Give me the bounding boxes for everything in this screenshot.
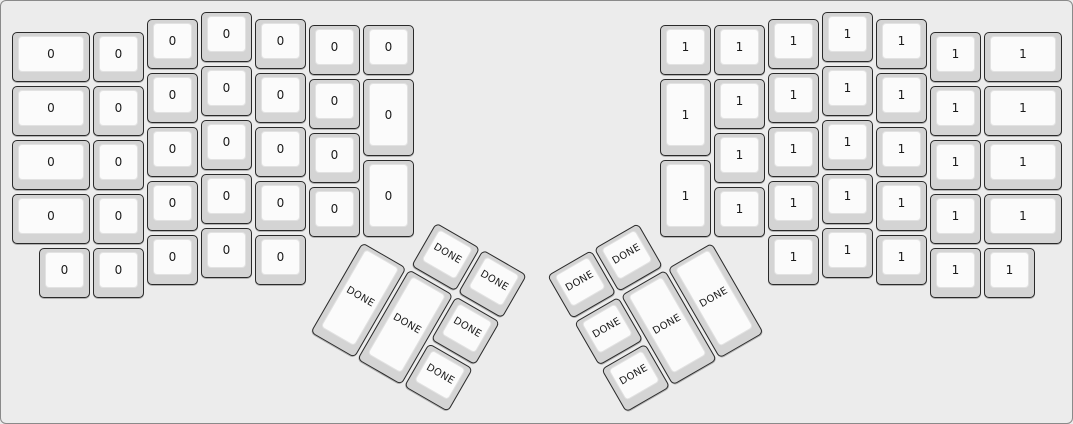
- key-left-main-17[interactable]: 0: [255, 73, 306, 123]
- key-right-main-29[interactable]: 1: [876, 235, 927, 285]
- keycap-top: 1: [720, 83, 759, 119]
- key-label: 1: [952, 156, 960, 168]
- key-right-main-5[interactable]: 1: [714, 133, 765, 183]
- key-label: 0: [47, 210, 55, 222]
- keycap-top: 0: [261, 185, 300, 221]
- keycap-top: 0: [369, 29, 408, 65]
- key-right-main-16[interactable]: 1: [876, 73, 927, 123]
- key-label: 0: [47, 156, 55, 168]
- key-label: 1: [736, 95, 744, 107]
- key-label: 0: [277, 197, 285, 209]
- keycap-top: 1: [882, 77, 921, 113]
- keycap-top: 1: [936, 36, 975, 72]
- keycap-top: 1: [990, 36, 1056, 72]
- key-label: 0: [223, 28, 231, 40]
- key-label: 1: [898, 251, 906, 263]
- key-label: 0: [385, 109, 393, 121]
- keycap-top: 1: [990, 198, 1056, 234]
- keycap-top: 1: [666, 29, 705, 65]
- key-right-main-0[interactable]: 1: [660, 25, 711, 75]
- key-left-main-23[interactable]: 0: [309, 187, 360, 237]
- key-label: 1: [898, 197, 906, 209]
- keycap-top: 1: [936, 198, 975, 234]
- key-left-main-3[interactable]: 0: [12, 194, 90, 244]
- key-label: 0: [169, 35, 177, 47]
- keycap-top: 0: [99, 144, 138, 180]
- key-left-main-7[interactable]: 0: [93, 194, 144, 244]
- key-left-main-13[interactable]: 0: [201, 66, 252, 116]
- keycap-top: 1: [828, 70, 867, 106]
- key-right-main-19[interactable]: 1: [930, 32, 981, 82]
- keycap-top: 1: [720, 29, 759, 65]
- key-left-main-0[interactable]: 0: [12, 32, 90, 82]
- key-left-main-5[interactable]: 0: [93, 86, 144, 136]
- keycap-top: DONE: [421, 229, 473, 280]
- key-right-main-4[interactable]: 1: [714, 79, 765, 129]
- key-label: 0: [169, 89, 177, 101]
- keycap-top: DONE: [608, 350, 660, 401]
- key-label: 0: [115, 264, 123, 276]
- key-label: 1: [844, 136, 852, 148]
- keycap-top: 0: [207, 70, 246, 106]
- key-right-main-9[interactable]: 1: [768, 127, 819, 177]
- key-left-main-27[interactable]: 0: [39, 248, 90, 298]
- key-right-main-22[interactable]: 1: [930, 194, 981, 244]
- key-label: 1: [1019, 210, 1027, 222]
- keycap-top: 0: [369, 83, 408, 146]
- keycap-top: 1: [882, 185, 921, 221]
- key-label: 0: [277, 89, 285, 101]
- keycap-top: 1: [666, 164, 705, 227]
- keycap-top: 0: [99, 36, 138, 72]
- keycap-top: DONE: [441, 302, 493, 353]
- keycap-top: 1: [666, 83, 705, 146]
- key-left-main-31[interactable]: 0: [255, 235, 306, 285]
- key-label: DONE: [618, 363, 649, 387]
- keycap-top: 0: [99, 198, 138, 234]
- key-left-main-20[interactable]: 0: [309, 25, 360, 75]
- key-left-main-10[interactable]: 0: [147, 127, 198, 177]
- key-left-main-21[interactable]: 0: [309, 79, 360, 129]
- key-label: 0: [277, 35, 285, 47]
- key-left-main-4[interactable]: 0: [93, 32, 144, 82]
- key-right-main-8[interactable]: 1: [768, 73, 819, 123]
- key-right-main-24[interactable]: 1: [984, 86, 1062, 136]
- key-left-main-12[interactable]: 0: [201, 12, 252, 62]
- key-left-main-26[interactable]: 0: [363, 160, 414, 237]
- key-left-main-2[interactable]: 0: [12, 140, 90, 190]
- keycap-top: 1: [936, 90, 975, 126]
- keycap-top: 0: [261, 23, 300, 59]
- keycap-top: 1: [882, 131, 921, 167]
- key-label: 0: [169, 251, 177, 263]
- key-left-main-18[interactable]: 0: [255, 127, 306, 177]
- key-right-main-12[interactable]: 1: [822, 66, 873, 116]
- keycap-top: 0: [153, 239, 192, 275]
- keyboard-board: 0000000000000000000000000000000011111111…: [0, 0, 1073, 424]
- keycap-top: 1: [990, 144, 1056, 180]
- keycap-top: DONE: [468, 256, 520, 307]
- key-label: 1: [790, 89, 798, 101]
- key-label: DONE: [478, 269, 509, 293]
- key-right-main-31[interactable]: 1: [984, 248, 1035, 298]
- keycap-top: 0: [153, 185, 192, 221]
- key-label: 1: [1019, 102, 1027, 114]
- key-right-main-17[interactable]: 1: [876, 127, 927, 177]
- key-label: DONE: [698, 286, 729, 310]
- keycap-top: 0: [207, 16, 246, 52]
- keycap-top: 1: [882, 23, 921, 59]
- keycap-top: 0: [18, 144, 84, 180]
- key-right-main-27[interactable]: 1: [768, 235, 819, 285]
- keycap-top: 0: [99, 252, 138, 288]
- key-label: 1: [844, 82, 852, 94]
- keycap-top: DONE: [601, 229, 653, 280]
- key-label: 1: [1019, 156, 1027, 168]
- key-label: DONE: [611, 242, 642, 266]
- key-right-main-23[interactable]: 1: [984, 32, 1062, 82]
- key-right-main-28[interactable]: 1: [822, 228, 873, 278]
- key-right-main-14[interactable]: 1: [822, 174, 873, 224]
- key-label: 1: [844, 190, 852, 202]
- key-label: 1: [790, 35, 798, 47]
- key-label: DONE: [564, 269, 595, 293]
- key-left-main-8[interactable]: 0: [147, 19, 198, 69]
- keycap-top: 0: [18, 36, 84, 72]
- key-left-main-15[interactable]: 0: [201, 174, 252, 224]
- key-label: 1: [952, 264, 960, 276]
- keycap-top: 1: [774, 239, 813, 275]
- key-label: 1: [682, 41, 690, 53]
- keycap-top: 0: [99, 90, 138, 126]
- key-label: 1: [682, 190, 690, 202]
- key-right-main-10[interactable]: 1: [768, 181, 819, 231]
- key-right-main-1[interactable]: 1: [660, 79, 711, 156]
- key-left-main-29[interactable]: 0: [147, 235, 198, 285]
- keycap-top: 1: [828, 178, 867, 214]
- keycap-top: 0: [261, 77, 300, 113]
- key-label: 1: [790, 251, 798, 263]
- key-right-main-21[interactable]: 1: [930, 140, 981, 190]
- key-label: 1: [736, 41, 744, 53]
- keycap-top: DONE: [554, 256, 606, 307]
- key-label: 1: [1006, 264, 1014, 276]
- keycap-top: 0: [18, 90, 84, 126]
- key-label: 1: [790, 197, 798, 209]
- key-label: 1: [898, 35, 906, 47]
- key-label: 0: [331, 149, 339, 161]
- keycap-top: 0: [18, 198, 84, 234]
- keycap-top: 0: [45, 252, 84, 288]
- key-left-main-14[interactable]: 0: [201, 120, 252, 170]
- keycap-top: 0: [207, 232, 246, 268]
- keycap-top: 1: [882, 239, 921, 275]
- key-label: 0: [169, 197, 177, 209]
- keycap-top: DONE: [414, 349, 466, 400]
- key-label: DONE: [424, 362, 455, 386]
- key-label: 0: [115, 48, 123, 60]
- keycap-top: 1: [774, 131, 813, 167]
- key-right-main-18[interactable]: 1: [876, 181, 927, 231]
- keycap-top: 1: [720, 191, 759, 227]
- key-label: 0: [331, 95, 339, 107]
- key-right-main-25[interactable]: 1: [984, 140, 1062, 190]
- keycap-top: 1: [936, 252, 975, 288]
- key-right-main-26[interactable]: 1: [984, 194, 1062, 244]
- key-label: 1: [736, 149, 744, 161]
- key-label: 0: [169, 143, 177, 155]
- key-label: 0: [223, 82, 231, 94]
- keycap-top: 0: [261, 239, 300, 275]
- key-label: 0: [331, 203, 339, 215]
- key-label: 0: [47, 102, 55, 114]
- keycap-top: 1: [828, 124, 867, 160]
- key-left-main-1[interactable]: 0: [12, 86, 90, 136]
- key-label: 0: [385, 190, 393, 202]
- keycap-top: 1: [774, 185, 813, 221]
- keycap-top: 0: [315, 83, 354, 119]
- key-right-main-3[interactable]: 1: [714, 25, 765, 75]
- keycap-top: 0: [369, 164, 408, 227]
- key-right-main-2[interactable]: 1: [660, 160, 711, 237]
- key-label: 1: [682, 109, 690, 121]
- key-left-main-9[interactable]: 0: [147, 73, 198, 123]
- key-left-main-30[interactable]: 0: [201, 228, 252, 278]
- key-left-main-11[interactable]: 0: [147, 181, 198, 231]
- key-left-main-6[interactable]: 0: [93, 140, 144, 190]
- keycap-top: 0: [261, 131, 300, 167]
- key-left-main-25[interactable]: 0: [363, 79, 414, 156]
- keycap-top: 0: [207, 124, 246, 160]
- key-label: 0: [223, 244, 231, 256]
- keycap-top: 1: [990, 252, 1029, 288]
- key-label: 0: [47, 48, 55, 60]
- keycap-top: 1: [990, 90, 1056, 126]
- keycap-top: 0: [153, 23, 192, 59]
- key-label: 1: [952, 210, 960, 222]
- key-label: DONE: [344, 285, 375, 309]
- key-label: 0: [331, 41, 339, 53]
- key-left-main-19[interactable]: 0: [255, 181, 306, 231]
- keycap-top: 1: [828, 16, 867, 52]
- keycap-top: 1: [828, 232, 867, 268]
- key-left-main-24[interactable]: 0: [363, 25, 414, 75]
- key-right-main-15[interactable]: 1: [876, 19, 927, 69]
- keycap-top: 0: [207, 178, 246, 214]
- key-label: 0: [223, 136, 231, 148]
- key-label: 0: [277, 143, 285, 155]
- key-label: 1: [844, 244, 852, 256]
- key-label: 1: [1019, 48, 1027, 60]
- key-label: DONE: [431, 242, 462, 266]
- keycap-top: 0: [315, 29, 354, 65]
- key-left-main-22[interactable]: 0: [309, 133, 360, 183]
- key-label: DONE: [451, 316, 482, 340]
- key-label: 0: [61, 264, 69, 276]
- keycap-top: 1: [774, 77, 813, 113]
- key-label: DONE: [391, 312, 422, 336]
- key-label: 0: [115, 102, 123, 114]
- key-label: 1: [898, 143, 906, 155]
- key-label: 0: [115, 156, 123, 168]
- key-right-main-7[interactable]: 1: [768, 19, 819, 69]
- keycap-top: 0: [153, 77, 192, 113]
- key-label: 0: [385, 41, 393, 53]
- key-right-main-20[interactable]: 1: [930, 86, 981, 136]
- key-label: 0: [277, 251, 285, 263]
- key-label: 0: [115, 210, 123, 222]
- key-label: DONE: [591, 316, 622, 340]
- keycap-top: DONE: [581, 303, 633, 354]
- keycap-top: 1: [774, 23, 813, 59]
- keycap-top: 1: [936, 144, 975, 180]
- key-right-main-13[interactable]: 1: [822, 120, 873, 170]
- key-label: 1: [952, 48, 960, 60]
- keycap-top: 1: [720, 137, 759, 173]
- key-label: 1: [844, 28, 852, 40]
- key-right-main-11[interactable]: 1: [822, 12, 873, 62]
- key-right-main-30[interactable]: 1: [930, 248, 981, 298]
- keycap-top: 0: [153, 131, 192, 167]
- key-label: 1: [736, 203, 744, 215]
- key-label: DONE: [652, 313, 683, 337]
- key-left-main-28[interactable]: 0: [93, 248, 144, 298]
- keycap-top: 0: [315, 137, 354, 173]
- key-left-main-16[interactable]: 0: [255, 19, 306, 69]
- key-right-main-6[interactable]: 1: [714, 187, 765, 237]
- keycap-top: 0: [315, 191, 354, 227]
- key-label: 1: [790, 143, 798, 155]
- key-label: 1: [898, 89, 906, 101]
- key-label: 1: [952, 102, 960, 114]
- key-label: 0: [223, 190, 231, 202]
